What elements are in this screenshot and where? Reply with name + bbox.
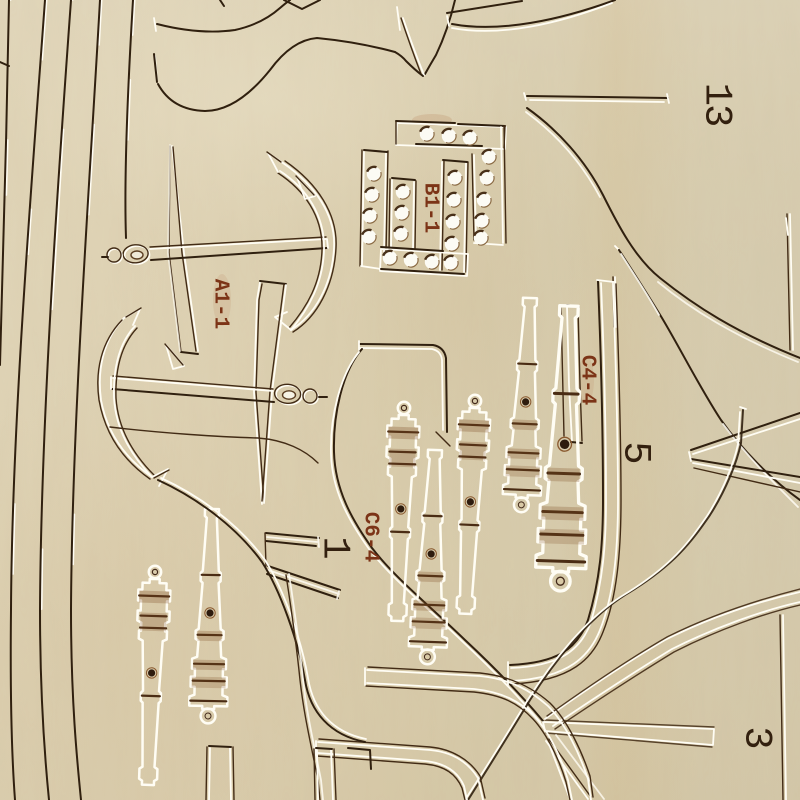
- svg-text:5: 5: [614, 441, 658, 462]
- svg-text:13: 13: [695, 83, 739, 126]
- svg-text:B1-1: B1-1: [418, 183, 441, 233]
- svg-text:C6-4: C6-4: [358, 512, 381, 562]
- svg-text:1: 1: [313, 536, 357, 558]
- svg-text:3: 3: [735, 726, 779, 747]
- svg-text:A1-1: A1-1: [208, 279, 231, 329]
